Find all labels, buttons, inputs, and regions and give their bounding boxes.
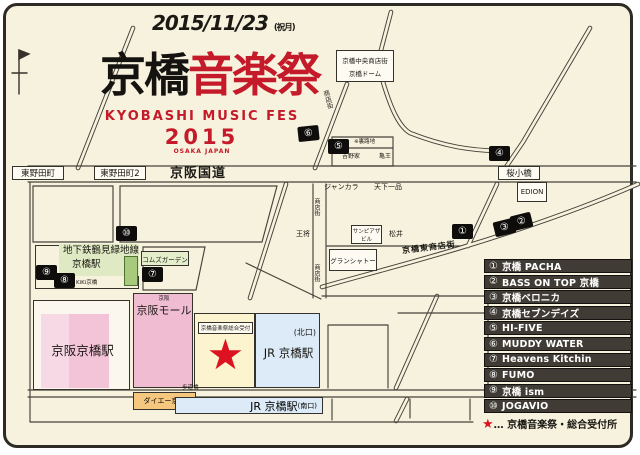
legend-note: ★… 京橋音楽祭・総合受付所 (482, 418, 617, 432)
sakurakobashi-box: 桜小橋 (498, 166, 540, 180)
title-ongakusai: 音楽祭 (188, 48, 320, 102)
kitaguchi-label: (北口) (256, 329, 316, 338)
legend-label: FUMO (502, 370, 535, 381)
jankara-label: ジャンカラ (324, 184, 359, 192)
poster-title: 京橋音楽祭 (100, 50, 304, 101)
sunpiazza-box: サンピアザ ビル (351, 225, 382, 244)
map-marker-5: ⑤ (328, 139, 349, 154)
legend-item: ① 京橋 PACHA (484, 259, 632, 273)
legend-num: ⑨ (489, 385, 498, 396)
higashinodacho2-box: 東野田町2 (94, 166, 146, 180)
legend-label: Heavens Kitchin (502, 354, 592, 365)
legend-item: ⑤ HI-FIVE (484, 321, 632, 335)
minamiguchi-label: (南口) (298, 401, 317, 411)
legend-num: ⑧ (489, 370, 498, 381)
urarouji-label: ※裏路地 (354, 139, 375, 145)
keihan-mall-label: 京阪モール (134, 305, 194, 317)
small-green-building (124, 256, 138, 286)
legend-num: ⑥ (489, 339, 498, 350)
legend-item: ④ 京橋セブンデイズ (484, 306, 632, 320)
place-line: OSAKA JAPAN (100, 149, 304, 156)
tenkaippin-label: 天下一品 (374, 184, 402, 192)
metro-line-label: 地下鉄鶴見緑地線 (63, 246, 139, 256)
kiki-label: KiKi京橋 (76, 280, 97, 286)
jr-south-label: JR 京橋駅 (250, 398, 297, 414)
legend-num: ③ (489, 292, 498, 303)
map-marker-8: ⑧ (54, 273, 75, 288)
legend-item: ③ 京橋ベロニカ (484, 290, 632, 304)
dome-line2: 京橋ドーム (349, 68, 381, 78)
legend-label: 京橋セブンデイズ (502, 306, 579, 320)
legend-note-text: … 京橋音楽祭・総合受付所 (494, 420, 617, 431)
matsui-label: 松井 (389, 231, 403, 239)
jr-station-label: JR 京橋駅 (256, 347, 321, 360)
legend-num: ① (489, 261, 498, 272)
sunpiazza-line2: ビル (361, 235, 372, 243)
legend-item: ⑦ Heavens Kitchin (484, 353, 632, 367)
map-marker-7: ⑦ (142, 267, 163, 282)
legend-label: 京橋 PACHA (502, 259, 562, 273)
grand-chateau-box: グランシャトー (329, 249, 377, 271)
legend-item: ⑨ 京橋 ism (484, 384, 632, 398)
legend-label: HI-FIVE (502, 323, 543, 334)
shotengai-label-upper: 商店街 (313, 198, 319, 216)
legend-label: 京橋ベロニカ (502, 290, 560, 304)
legend-num: ⑩ (489, 401, 498, 412)
north-symbol (12, 50, 29, 94)
date-note: (祝月) (274, 23, 295, 33)
legend-star-icon: ★ (482, 417, 494, 432)
reception-block: 京橋音楽祭総合受付 ★ (194, 313, 255, 388)
legend-num: ⑤ (489, 323, 498, 334)
keihan-small-label: 京阪 (134, 296, 194, 302)
kyobashi-dome-box: 京橋中央商店街 京橋ドーム (336, 50, 394, 82)
legend-label: BASS ON TOP 京橋 (502, 275, 599, 289)
subtitle: KYOBASHI MUSIC FES (100, 110, 304, 124)
legend-num: ④ (489, 307, 498, 318)
jr-south-block: JR 京橋駅 (南口) (175, 397, 323, 414)
metro-station-label: 京橋駅 (72, 260, 101, 270)
map-marker-9: ⑨ (36, 265, 57, 280)
higashinodacho-box: 東野田町 (12, 166, 64, 180)
kyobashi-music-fes-map-poster: 2015/11/23 (祝月) 京橋音楽祭 KYOBASHI MUSIC FES… (0, 0, 640, 455)
ohsho-label: 王将 (296, 231, 310, 239)
comms-garden-box: コムズガーデン (141, 251, 189, 266)
legend-item: ② BASS ON TOP 京橋 (484, 275, 632, 289)
map-marker-6: ⑥ (297, 125, 319, 142)
shotengai-label-lower: 商店街 (313, 264, 319, 282)
map-marker-10: ⑩ (116, 226, 137, 241)
edion-box: EDION (517, 182, 547, 202)
legend-item: ⑥ MUDDY WATER (484, 337, 632, 351)
kameou-label: 亀王 (379, 154, 391, 161)
event-date: 2015/11/23 (祝月) (152, 12, 295, 34)
keihan-station-label: 京阪京橋駅 (34, 344, 131, 358)
map-marker-4: ④ (489, 146, 510, 161)
year: 2015 (100, 126, 304, 149)
yoshinoya-label: 吉野家 (342, 154, 360, 161)
legend-label: MUDDY WATER (502, 339, 584, 350)
dome-line1: 京橋中央商店街 (342, 55, 388, 65)
legend-num: ⑦ (489, 354, 498, 365)
legend-label: 京橋 ism (502, 384, 544, 398)
date-text: 2015/11/23 (152, 11, 268, 35)
legend-label: JOGAVIO (502, 401, 548, 412)
reception-star-icon: ★ (195, 332, 256, 378)
legend-item: ⑧ FUMO (484, 368, 632, 382)
hodokyo-label: 歩道橋 (182, 385, 199, 391)
keihan-kokudo-label: 京阪国道 (170, 167, 226, 181)
sunpiazza-line1: サンピアザ (353, 227, 381, 235)
keihan-mall-block: 京阪 京阪モール (133, 293, 193, 388)
jr-station-block: (北口) JR 京橋駅 (255, 313, 320, 388)
title-kyobashi: 京橋 (100, 48, 188, 102)
keihan-station-block: 京阪京橋駅 (33, 300, 130, 390)
legend-item: ⑩ JOGAVIO (484, 399, 632, 413)
map-marker-1: ① (452, 224, 473, 239)
legend-num: ② (489, 276, 498, 287)
